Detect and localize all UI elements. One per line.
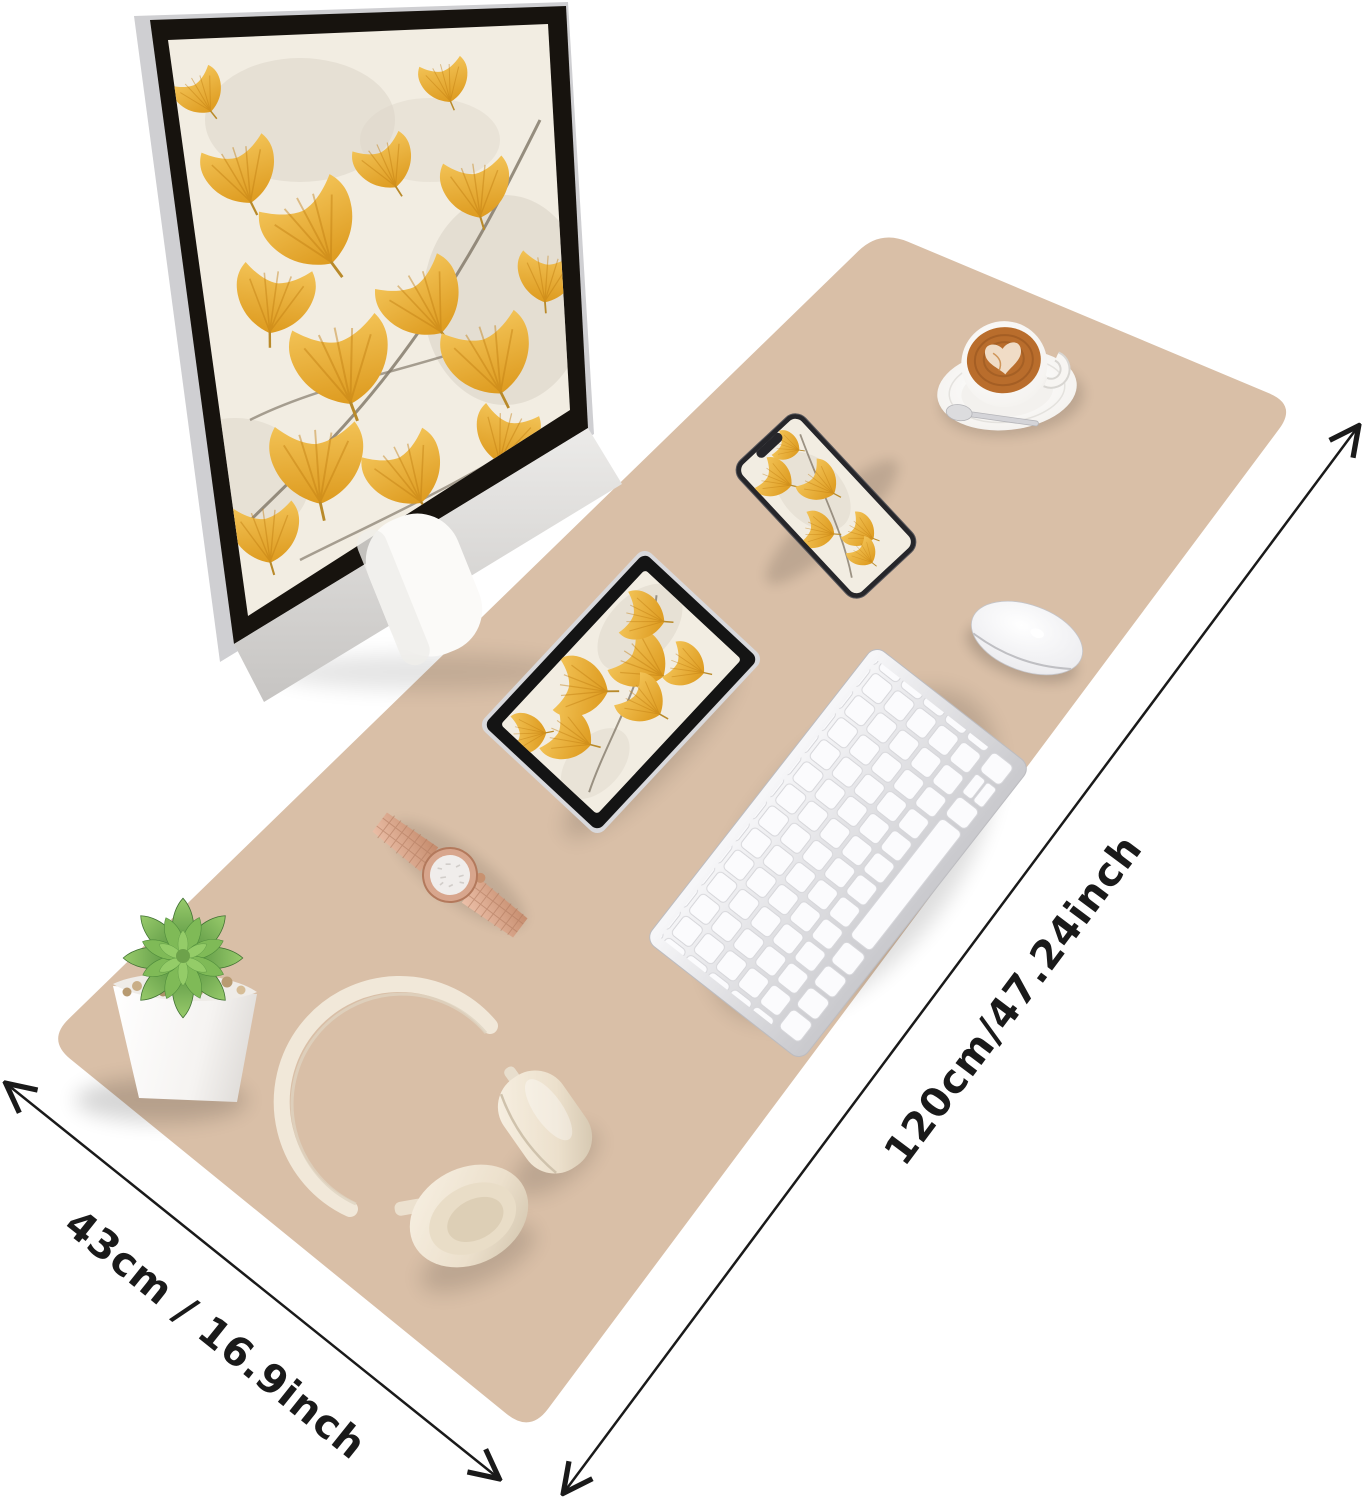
succulent [123, 898, 243, 1018]
scene: 120cm/47.24inch 43cm / 16.9inch [0, 0, 1367, 1500]
product-photo: 120cm/47.24inch 43cm / 16.9inch [0, 0, 1367, 1500]
